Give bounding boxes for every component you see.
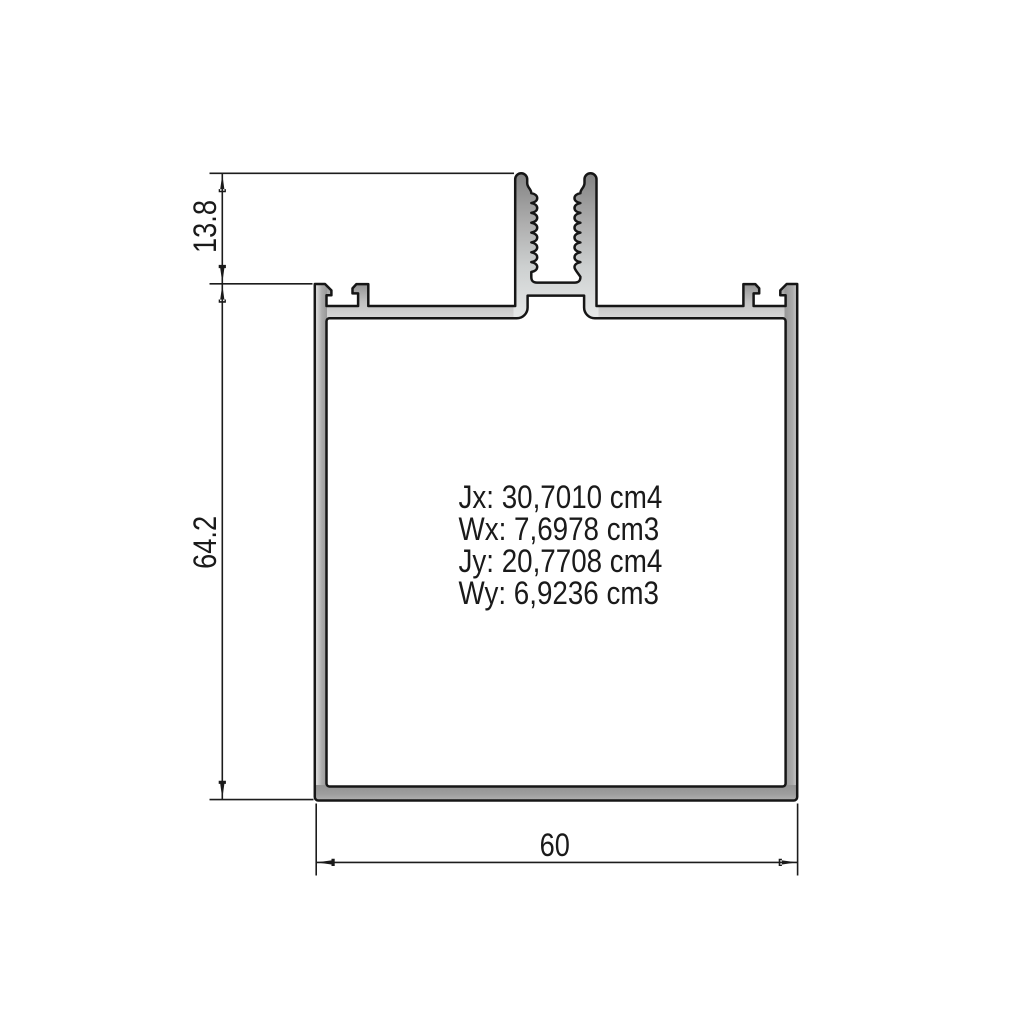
svg-text:60: 60 xyxy=(540,828,570,864)
svg-text:Jx: 30,7010 cm4: Jx: 30,7010 cm4 xyxy=(459,480,663,515)
svg-text:13.8: 13.8 xyxy=(188,200,224,253)
svg-text:Wx: 7,6978 cm3: Wx: 7,6978 cm3 xyxy=(459,512,660,547)
svg-text:64.2: 64.2 xyxy=(188,516,224,569)
svg-text:Wy: 6,9236 cm3: Wy: 6,9236 cm3 xyxy=(459,576,659,611)
svg-text:Jy: 20,7708 cm4: Jy: 20,7708 cm4 xyxy=(459,544,663,579)
